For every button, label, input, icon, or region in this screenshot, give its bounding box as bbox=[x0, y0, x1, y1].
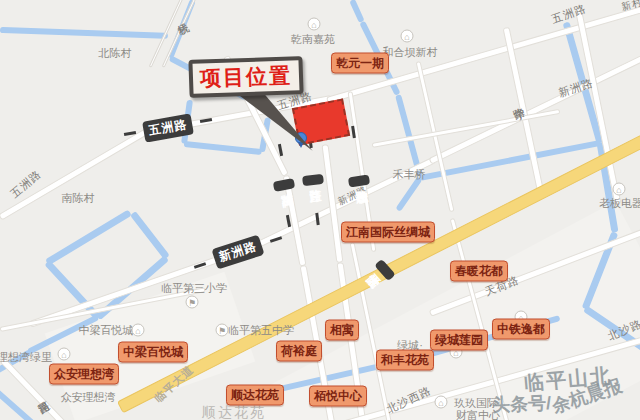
place-qiannan-jiayuan: 乾南嘉苑 bbox=[291, 32, 335, 47]
place-zhongliang-gray: 中梁百悦城 bbox=[79, 323, 134, 338]
place-nanchen-village: 南陈村 bbox=[62, 191, 95, 206]
house-icon: ⌂ bbox=[308, 18, 321, 31]
school-icon: ⚑ bbox=[186, 296, 199, 309]
company-icon: ⌂ bbox=[613, 183, 626, 196]
house-icon: ⌂ bbox=[132, 324, 145, 337]
place-no3-primary-school: 临平第三小学 bbox=[161, 281, 227, 296]
poi-shunda[interactable]: 顺达花苑 bbox=[226, 385, 284, 406]
poi-lvcheng[interactable]: 绿城莲园 bbox=[430, 330, 488, 351]
poi-chunnuan[interactable]: 春暖花都 bbox=[450, 261, 508, 282]
river-segment bbox=[349, 0, 364, 23]
place-robam: 老板电器 bbox=[599, 196, 640, 211]
road-wuzhou bbox=[0, 126, 152, 220]
house-icon: ⌂ bbox=[401, 30, 414, 43]
river-segment bbox=[45, 210, 132, 266]
poi-hefeng[interactable]: 和丰花苑 bbox=[376, 350, 434, 371]
river-segment bbox=[184, 141, 262, 155]
place-beichen-village: 北陈村 bbox=[99, 46, 132, 61]
place-hehe-ba-xincun: 和合坝新村 bbox=[383, 45, 438, 60]
poi-zhongliang[interactable]: 中梁百悦城 bbox=[118, 342, 188, 363]
poi-baiyue[interactable]: 栢悦中心 bbox=[309, 386, 367, 407]
river-segment bbox=[130, 211, 170, 260]
building-icon: ⌂ bbox=[435, 396, 448, 409]
poi-silk-city[interactable]: 江南国际丝绸城 bbox=[341, 222, 435, 243]
place-zhongan-lvli: 众安理想湾绿里 bbox=[0, 350, 52, 365]
road-sign-changning: 长宁路在建 bbox=[348, 175, 370, 188]
poi-qianyuan-phase1[interactable]: 乾元一期 bbox=[331, 53, 389, 74]
project-location-callout: 项目位置 bbox=[188, 56, 303, 98]
place-shunda-gray: 顺达花苑 bbox=[202, 404, 266, 420]
house-icon: ⌂ bbox=[58, 348, 71, 361]
river-segment bbox=[395, 176, 422, 212]
place-hefeng-bridge: 禾丰桥 bbox=[393, 167, 426, 182]
school-icon: ⚑ bbox=[216, 324, 229, 337]
road-sign-xinzhou: 新洲路 bbox=[211, 234, 264, 269]
place-no5-middle-school: 临平第五中学 bbox=[228, 323, 294, 338]
road-sign-tinglan: 汀兰路 bbox=[302, 174, 324, 186]
poi-zhongan[interactable]: 众安理想湾 bbox=[49, 364, 119, 385]
poi-heyuting[interactable]: 荷裕庭 bbox=[276, 341, 322, 362]
place-zhongan-gray: 众安理想湾 bbox=[61, 390, 116, 405]
watermark-source-prefix: 头条号/ bbox=[492, 391, 552, 417]
map-canvas[interactable]: 五洲路 五洲路 五洲路 新洲路 新洲路 华宁路 天荷路 北沙西路 北沙路 星河路… bbox=[0, 0, 640, 420]
river-segment bbox=[0, 27, 168, 39]
poi-xiangyu[interactable]: 相寓 bbox=[325, 320, 359, 341]
poi-zhongtie[interactable]: 中铁逸都 bbox=[492, 319, 550, 340]
